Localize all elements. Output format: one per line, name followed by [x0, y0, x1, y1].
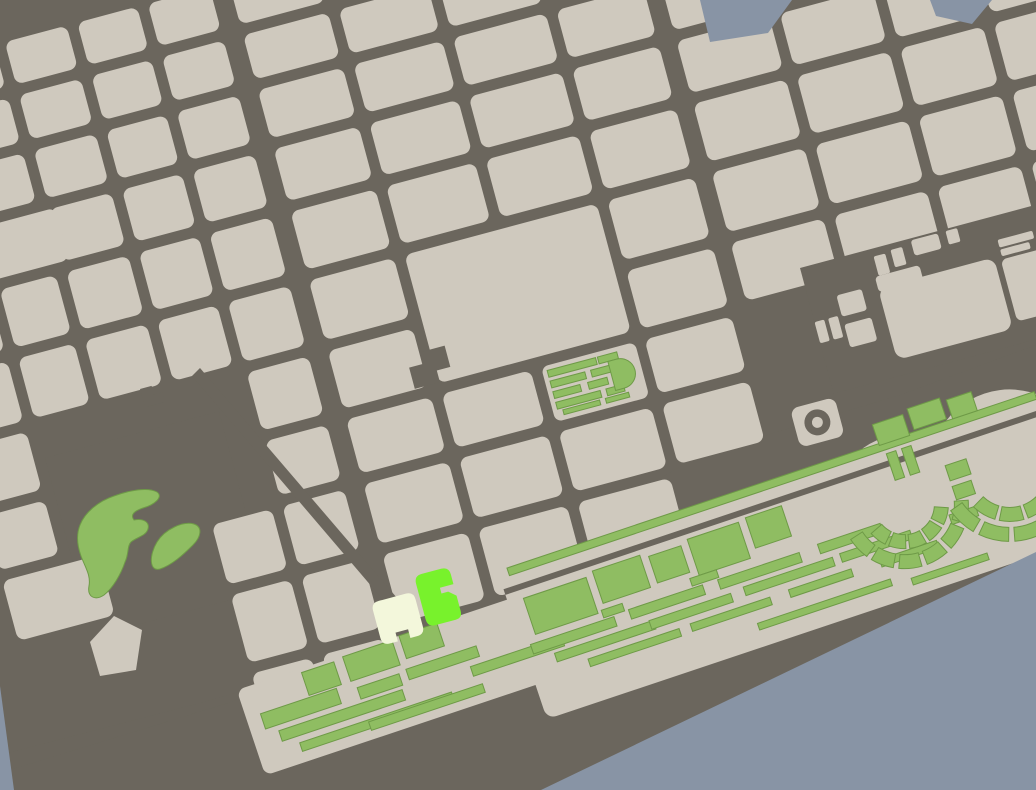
city-map-svg[interactable] [0, 0, 1036, 790]
city-map-viewport[interactable] [0, 0, 1036, 790]
